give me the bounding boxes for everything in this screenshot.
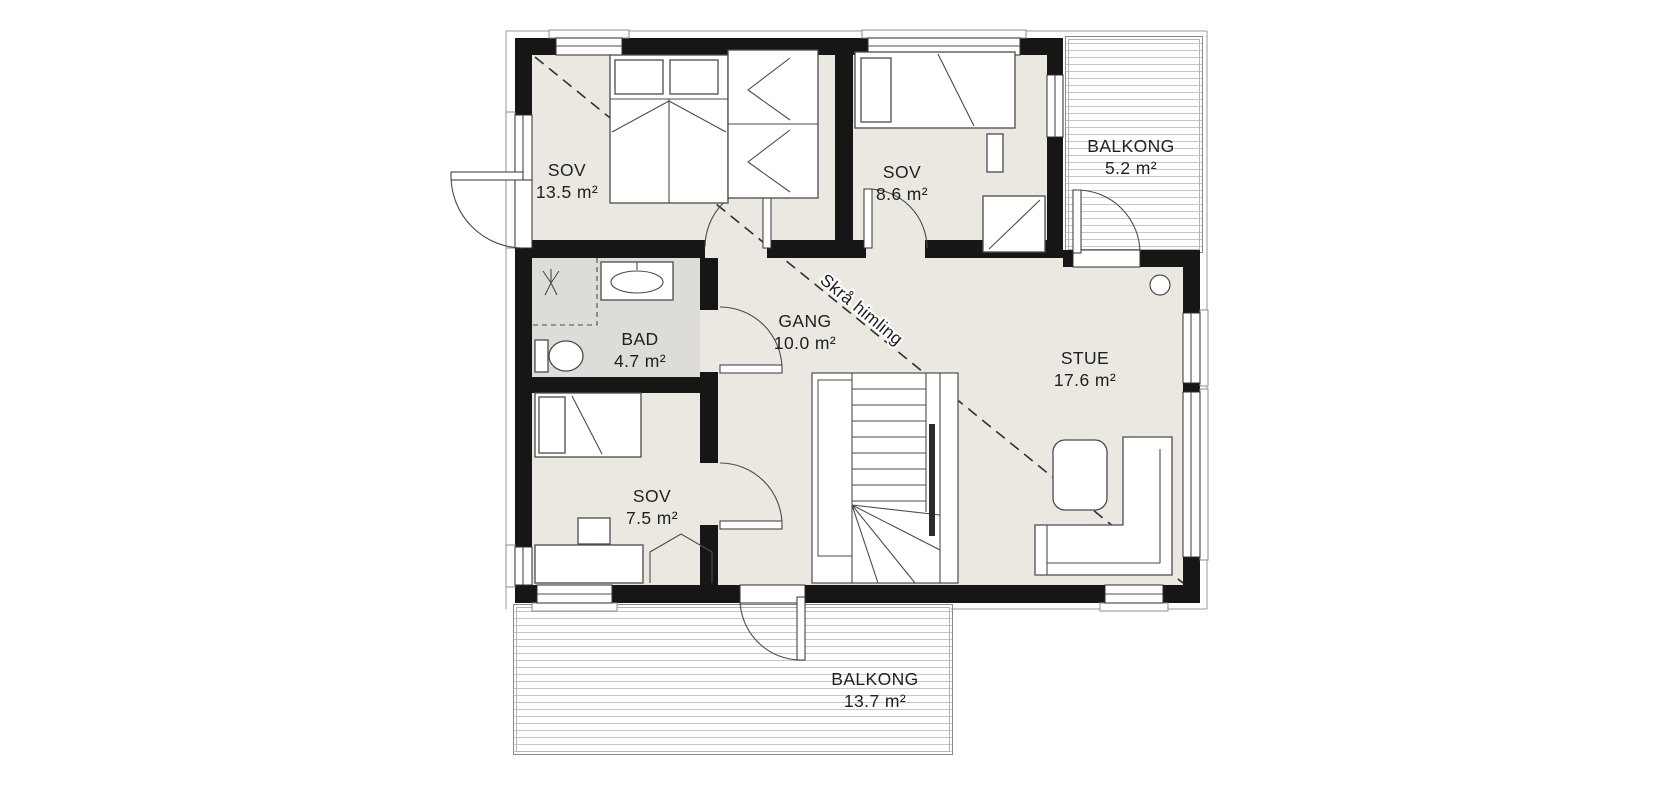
label-sov1-area: 13.5 m²: [536, 182, 598, 202]
door-balcony-bottom-opening: [740, 585, 805, 603]
label-balkong-bottom-area: 13.7 m²: [844, 691, 906, 711]
label-balkong-top: BALKONG: [1087, 136, 1174, 156]
label-balkong-bottom: BALKONG: [831, 669, 918, 689]
label-gang-area: 10.0 m²: [774, 333, 836, 353]
label-balkong-top-area: 5.2 m²: [1105, 158, 1157, 178]
armchair: [1053, 440, 1107, 510]
pillow: [615, 60, 663, 94]
label-stue: STUE: [1061, 348, 1109, 368]
label-sov2-area: 8.6 m²: [876, 184, 928, 204]
toilet-tank: [535, 340, 548, 372]
label-sov3-area: 7.5 m²: [626, 508, 678, 528]
pillow: [670, 60, 718, 94]
label-stue-area: 17.6 m²: [1054, 370, 1116, 390]
door-balcony-bottom: [740, 597, 805, 660]
bench: [535, 545, 643, 583]
label-gang: GANG: [778, 311, 831, 331]
label-sov2: SOV: [883, 162, 921, 182]
furniture-sov1: [610, 50, 818, 203]
floor-plan: SOV 13.5 m² SOV 8.6 m² BALKONG 5.2 m² BA…: [0, 0, 1670, 800]
floor-plan-drawing: SOV 13.5 m² SOV 8.6 m² BALKONG 5.2 m² BA…: [0, 0, 1670, 800]
pillow: [861, 58, 891, 122]
label-bad: BAD: [621, 329, 658, 349]
stair-handrail: [929, 424, 935, 536]
label-sov3: SOV: [633, 486, 671, 506]
label-bad-area: 4.7 m²: [614, 351, 666, 371]
staircase: [812, 373, 958, 583]
door-left-exterior-opening: [515, 180, 532, 248]
pillow: [539, 397, 565, 453]
label-sov1: SOV: [548, 160, 586, 180]
door-balcony-top: [1073, 190, 1140, 253]
chimney-pipe: [1150, 275, 1170, 295]
shelf: [987, 134, 1003, 172]
door-balcony-top-opening: [1073, 250, 1140, 267]
desk: [578, 518, 610, 544]
toilet-bowl: [549, 341, 583, 371]
